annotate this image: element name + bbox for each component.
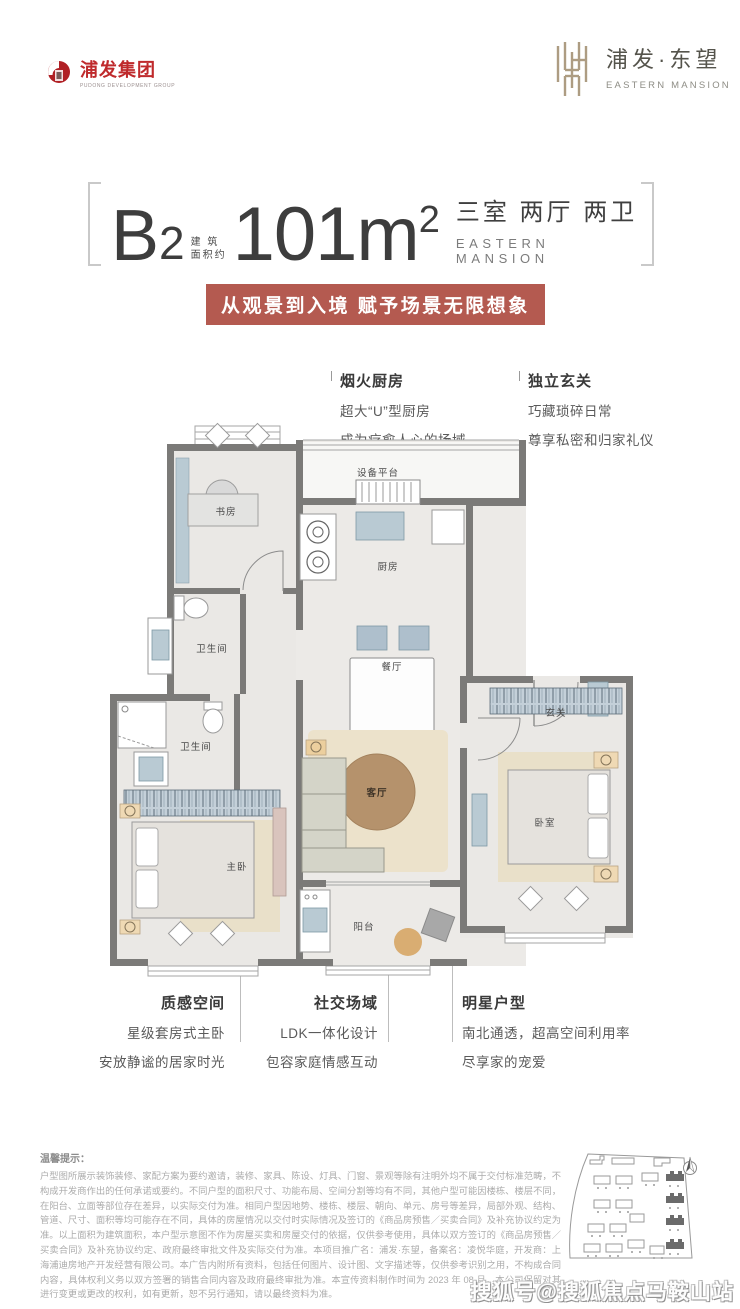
project-logo-mark — [552, 40, 592, 98]
title-bracket-right — [641, 182, 654, 266]
project-name: 浦发·东望 — [606, 47, 731, 73]
unit-title: B 2 建 筑 面积约 101m2 三室 两厅 两卫 EASTERN MANSI… — [88, 180, 654, 268]
room-label-master: 主卧 — [226, 859, 247, 873]
room-label-kitchen: 厨房 — [377, 559, 398, 573]
vent-stack — [356, 480, 420, 504]
area-note: 建 筑 面积约 — [191, 236, 227, 262]
site-plan-compass — [684, 1157, 697, 1175]
room-label-living: 客厅 — [366, 785, 387, 799]
living-furniture — [302, 730, 448, 872]
room-label-balcony: 阳台 — [353, 919, 374, 933]
layout-cn: 三室 两厅 两卫 — [456, 192, 641, 227]
room-label-bath2: 卫生间 — [180, 739, 212, 753]
watermark: 搜狐号@搜狐焦点马鞍山站 — [471, 1276, 734, 1306]
room-label-equipment: 设备平台 — [357, 465, 399, 479]
group-name: 浦发集团 — [80, 60, 175, 80]
room-label-study: 书房 — [215, 504, 236, 518]
floor-plan — [110, 418, 645, 978]
callout-tick — [331, 371, 332, 381]
callout-tick — [519, 371, 520, 381]
site-plan — [566, 1146, 706, 1272]
room-label-dining: 餐厅 — [381, 659, 402, 673]
layout-summary: 三室 两厅 两卫 EASTERN MANSION — [456, 192, 641, 266]
callout-star: 明星户型 南北通透，超高空间利用率 尽享家的宠爱 — [462, 992, 630, 1071]
disclaimer-title: 温馨提示： — [40, 1150, 561, 1165]
group-logo-icon — [46, 60, 74, 90]
layout-en: EASTERN MANSION — [456, 236, 641, 266]
project-name-en: EASTERN MANSION — [606, 80, 731, 91]
group-tagline: PUDONG DEVELOPMENT GROUP — [80, 83, 175, 89]
title-bracket-left — [88, 182, 101, 266]
project-logo: 浦发·东望 EASTERN MANSION — [552, 40, 731, 98]
area-value: 101m2 — [233, 199, 440, 268]
slogan-text: 从观景到入境 赋予场景无限想象 — [206, 284, 545, 325]
room-label-bath1: 卫生间 — [196, 641, 228, 655]
unit-code-number: 2 — [159, 218, 185, 268]
unit-code: B — [111, 204, 159, 268]
group-logo: 浦发集团 PUDONG DEVELOPMENT GROUP — [46, 60, 175, 90]
room-label-bedroom: 卧室 — [534, 815, 555, 829]
slogan-banner: 从观景到入境 赋予场景无限想象 — [206, 284, 545, 325]
callout-social: 社交场域 LDK一体化设计 包容家庭情感互动 — [266, 992, 378, 1071]
callout-master: 质感空间 星级套房式主卧 安放静谧的居家时光 — [99, 992, 225, 1071]
room-label-foyer: 玄关 — [545, 705, 566, 719]
